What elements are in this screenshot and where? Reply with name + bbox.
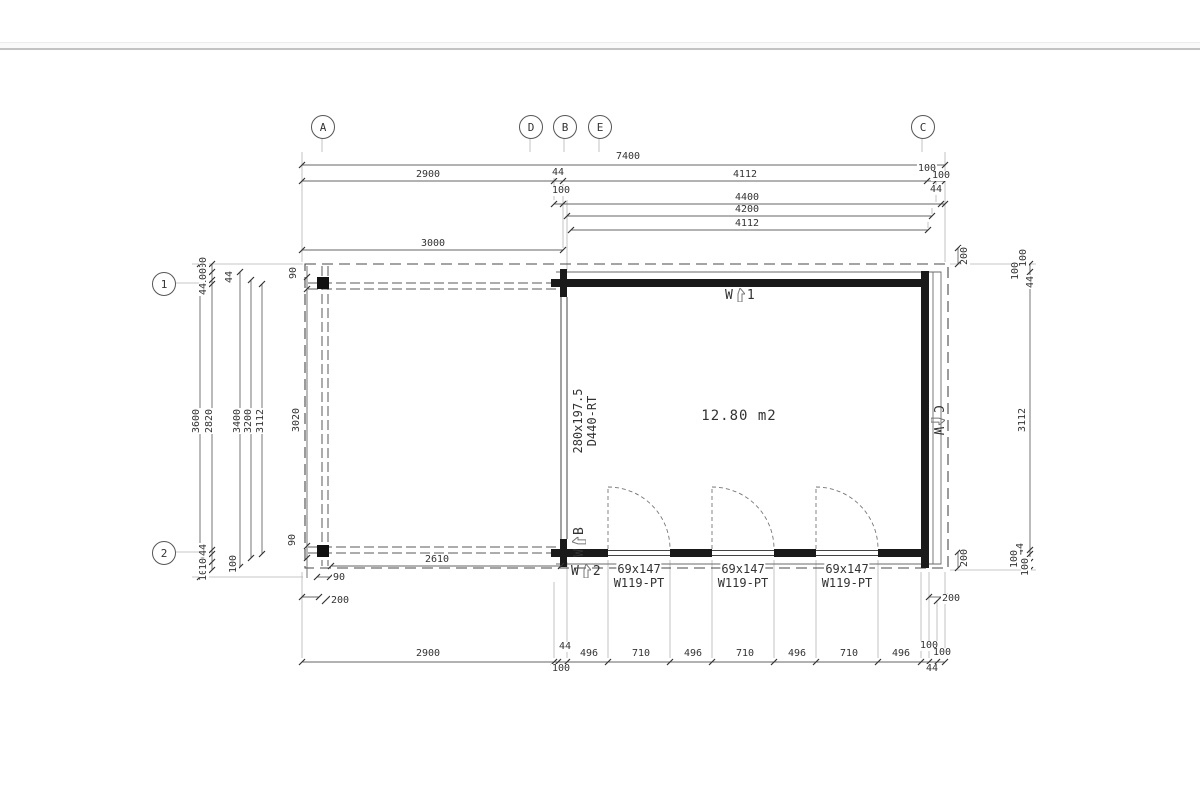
dim-right-stack-top-100b: 100: [1019, 248, 1029, 268]
dim-left-3200: 3200: [244, 408, 254, 434]
door-code: D440-RT: [586, 388, 600, 453]
window-frames: [608, 551, 878, 556]
dim-overhang-bottom-right2: 200: [941, 594, 961, 604]
dim-left-mid-100: 100: [229, 554, 239, 574]
view-arrow-right-icon: [931, 415, 945, 425]
dim-post-top: 90: [289, 266, 299, 280]
dim-4200: 4200: [734, 205, 760, 215]
dim-100-row3: 100: [551, 186, 571, 196]
dim-100-top-b: 100: [931, 171, 951, 181]
dim-bottom-2900: 2900: [415, 649, 441, 659]
dim-bottom-710-3: 710: [839, 649, 859, 659]
view-marker-w1: W 1: [725, 288, 755, 302]
dim-left-stack-top-44: 44: [199, 282, 209, 296]
view-marker-w2: W 2: [571, 564, 601, 578]
dim-bottom-100-b: 100: [932, 648, 952, 658]
dim-right-stack-top-44: 44: [1026, 275, 1036, 289]
dim-left-mid-44: 44: [225, 270, 235, 284]
door-label: 280x197.5 D440-RT: [572, 388, 600, 453]
grid-bubble-d: D: [519, 115, 543, 139]
dim-overhang-top-right: 200: [960, 246, 970, 266]
dim-post-bottom: 90: [288, 533, 298, 547]
dim-left-2820: 2820: [205, 408, 215, 434]
terrace-posts: [317, 277, 329, 557]
dim-left-stack-bot-44: 44: [199, 543, 209, 557]
window-code-label-1: W119-PT: [613, 577, 666, 589]
extension-lines: [174, 137, 1036, 658]
dim-44-row3: 44: [929, 185, 943, 195]
dim-44-top: 44: [551, 168, 565, 178]
dim-total-width: 7400: [615, 152, 641, 162]
dim-4112-inner: 4112: [734, 219, 760, 229]
dim-right-3112: 3112: [1018, 407, 1028, 433]
dim-bottom-496-2: 496: [683, 649, 703, 659]
dim-bottom-496-1: 496: [579, 649, 599, 659]
dim-terrace-2610: 2610: [424, 555, 450, 565]
dim-bottom-100-left: 100: [551, 664, 571, 674]
terrace-beam-lines: [308, 266, 561, 566]
dim-overhang-bottom-left: 200: [330, 596, 350, 606]
room-area-label: 12.80 m2: [699, 408, 778, 424]
grid-bubble-e: E: [588, 115, 612, 139]
dim-terrace-width: 3000: [420, 239, 446, 249]
dim-right-stack-bot-100a: 100: [1010, 549, 1020, 569]
dim-bottom-496-3: 496: [787, 649, 807, 659]
window-code-label-3: W119-PT: [821, 577, 874, 589]
dim-4400: 4400: [734, 193, 760, 203]
dim-right-stack-bot-100b: 100: [1021, 557, 1031, 577]
view-arrow-left-icon: [572, 537, 586, 547]
dim-4112-top: 4112: [732, 170, 758, 180]
view-marker-wc: C W: [931, 405, 945, 435]
view-arrow-up-icon: [581, 564, 591, 578]
dim-2900-top: 2900: [415, 170, 441, 180]
dim-bottom-710-2: 710: [735, 649, 755, 659]
dim-bottom-710-1: 710: [631, 649, 651, 659]
dim-left-3400: 3400: [233, 408, 243, 434]
view-arrow-up-icon: [735, 288, 745, 302]
grid-bubble-b: B: [553, 115, 577, 139]
dim-bottom-44-right: 44: [925, 664, 939, 674]
window-size-label-1: 69x147: [616, 563, 661, 575]
window-size-label-3: 69x147: [824, 563, 869, 575]
window-size-label-2: 69x147: [720, 563, 765, 575]
door-frame-lines: [561, 297, 567, 539]
dim-beam-3020: 3020: [292, 407, 302, 433]
grid-bubble-c: C: [911, 115, 935, 139]
window-code-label-2: W119-PT: [717, 577, 770, 589]
dim-bottom-496-4: 496: [891, 649, 911, 659]
dim-left-total: 3600: [192, 408, 202, 434]
dim-bottom-44: 44: [558, 642, 572, 652]
grid-bubble-a: A: [311, 115, 335, 139]
floor-plan-page: A D B E C 1 2 7400 2900 44 4112 100 100 …: [0, 0, 1200, 800]
roof-dashed-outline: [305, 264, 948, 568]
grid-bubble-1: 1: [152, 272, 176, 296]
dim-overhang-bottom-right: 200: [960, 548, 970, 568]
window-swing-arcs: [608, 487, 878, 549]
view-marker-wb: W B: [572, 527, 586, 557]
grid-bubble-2: 2: [152, 541, 176, 565]
dim-post-90-bottom: 90: [332, 573, 346, 583]
dim-left-3112: 3112: [256, 408, 266, 434]
door-size: 280x197.5: [572, 388, 586, 453]
